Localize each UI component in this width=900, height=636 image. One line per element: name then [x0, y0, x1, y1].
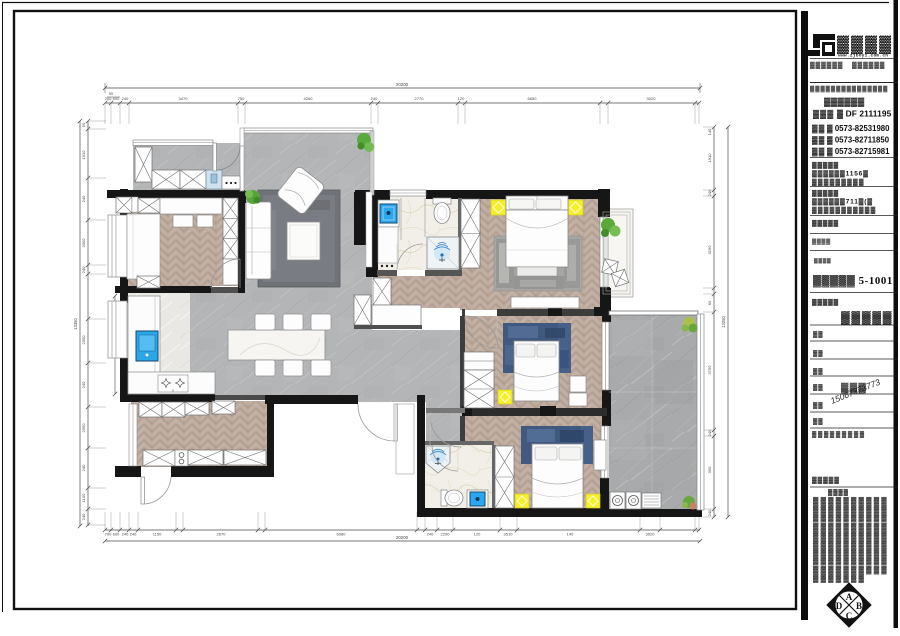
svg-text:3190: 3190 — [707, 245, 712, 255]
svg-text:3020: 3020 — [646, 532, 656, 537]
svg-text:▓▓: ▓▓ — [813, 384, 823, 391]
svg-text:▓▓: ▓▓ — [813, 418, 823, 425]
svg-text:▓▓: ▓▓ — [813, 350, 823, 357]
svg-text:1910: 1910 — [81, 150, 86, 160]
svg-text:120: 120 — [474, 532, 481, 537]
svg-text:▓▓▓▓▓▓▓▓▓▓▓: ▓▓▓▓▓▓▓▓▓▓▓ — [812, 206, 876, 214]
svg-text:2770: 2770 — [415, 96, 425, 101]
svg-text:▓▓: ▓▓ — [812, 124, 826, 134]
svg-text:700: 700 — [105, 532, 112, 537]
svg-text:3300: 3300 — [81, 238, 86, 248]
svg-text:1150: 1150 — [153, 532, 162, 537]
svg-text:▓▓▓▓▓▓: ▓▓▓▓▓▓ — [824, 97, 865, 108]
svg-text:240: 240 — [130, 532, 137, 537]
svg-text:3020: 3020 — [647, 96, 657, 101]
svg-text:▓▓▓▓▓: ▓▓▓▓▓ — [812, 299, 839, 306]
svg-text:▓▓: ▓▓ — [813, 402, 823, 409]
svg-text:▓▓▓▓: ▓▓▓▓ — [814, 257, 831, 264]
svg-text:240: 240 — [707, 509, 712, 516]
svg-text:240: 240 — [427, 532, 434, 537]
svg-text:240: 240 — [81, 464, 86, 471]
svg-text:C: C — [846, 611, 853, 621]
svg-text:▓▓▓▓▓: ▓▓▓▓▓ — [812, 476, 840, 484]
svg-text:▓▓▓▓: ▓▓▓▓ — [837, 35, 893, 54]
svg-text:3750: 3750 — [707, 365, 712, 375]
svg-text:▓▓▓▓▓: ▓▓▓▓▓ — [812, 190, 839, 197]
svg-text:▓▓▓▓▓▓: ▓▓▓▓▓▓ — [810, 61, 843, 69]
svg-text:13250: 13250 — [721, 316, 726, 328]
svg-text:750: 750 — [238, 96, 245, 101]
svg-text:240: 240 — [371, 96, 378, 101]
svg-text:6650: 6650 — [528, 96, 538, 101]
svg-text:▓ 0573-82715981: ▓ 0573-82715981 — [827, 147, 890, 157]
svg-text:2300: 2300 — [81, 335, 86, 345]
svg-text:50: 50 — [109, 92, 113, 96]
svg-text:▓▓▓▓▓ 5-1001: ▓▓▓▓▓ 5-1001 — [813, 275, 893, 288]
svg-text:2050: 2050 — [81, 423, 86, 433]
svg-text:▓ 0573-82711850: ▓ 0573-82711850 — [827, 136, 890, 146]
svg-text:6980: 6980 — [337, 532, 347, 537]
svg-text:20200: 20200 — [396, 82, 409, 87]
svg-text:240: 240 — [707, 429, 712, 436]
svg-text:240: 240 — [122, 96, 129, 101]
svg-text:▓▓▓▓: ▓▓▓▓ — [828, 489, 849, 496]
svg-text:▓ 0573-82531980: ▓ 0573-82531980 — [827, 124, 890, 134]
svg-text:20200: 20200 — [396, 535, 409, 540]
svg-text:n: n — [172, 389, 174, 393]
svg-text:140: 140 — [567, 532, 574, 537]
svg-text:240: 240 — [81, 381, 86, 388]
svg-text:240: 240 — [81, 513, 86, 520]
svg-text:▓▓▓▓▓▓1156▓: ▓▓▓▓▓▓1156▓ — [812, 170, 869, 178]
svg-text:1100: 1100 — [81, 493, 86, 502]
svg-text:240: 240 — [81, 266, 86, 273]
svg-text:▓▓▓▓▓▓711▓(▓: ▓▓▓▓▓▓711▓(▓ — [812, 198, 873, 206]
svg-text:▓▓: ▓▓ — [812, 147, 826, 157]
svg-text:▓▓▓▓▓▓: ▓▓▓▓▓▓ — [852, 61, 885, 69]
svg-text:1910: 1910 — [707, 153, 712, 163]
svg-text:240: 240 — [122, 532, 129, 537]
svg-text:240: 240 — [81, 195, 86, 202]
svg-text:▓▓▓▓▓: ▓▓▓▓▓ — [812, 162, 839, 169]
svg-text:▓▓▓▓▓: ▓▓▓▓▓ — [841, 310, 893, 325]
svg-text:D: D — [836, 601, 843, 611]
svg-text:2670: 2670 — [217, 532, 227, 537]
svg-text:▓▓: ▓▓ — [812, 136, 826, 146]
svg-text:120: 120 — [458, 96, 465, 101]
svg-text:▓▓▓▓▓▓▓▓▓: ▓▓▓▓▓▓▓▓▓ — [812, 431, 866, 438]
svg-text:240: 240 — [707, 189, 712, 196]
svg-text:▓▓▓▓▓: ▓▓▓▓▓ — [812, 220, 839, 227]
svg-text:▓▓▓▓▓▓▓▓▓: ▓▓▓▓▓▓▓▓▓ — [812, 178, 865, 186]
svg-text:600: 600 — [113, 532, 120, 537]
svg-text:A: A — [846, 592, 853, 602]
svg-text:13350: 13350 — [73, 318, 78, 330]
svg-text:▓▓▓▓: ▓▓▓▓ — [812, 238, 831, 245]
svg-text:3510: 3510 — [504, 532, 514, 537]
svg-text:▓▓: ▓▓ — [813, 331, 823, 338]
svg-text:50: 50 — [81, 122, 86, 127]
svg-text:140: 140 — [707, 128, 712, 135]
svg-text:350: 350 — [707, 466, 712, 473]
svg-text:60: 60 — [707, 300, 712, 305]
svg-text:▓▓▓▓▓▓▓: ▓▓▓▓▓▓▓ — [813, 573, 866, 583]
svg-text:4260: 4260 — [304, 96, 314, 101]
svg-text:www.zjboyi.com.cn: www.zjboyi.com.cn — [838, 53, 888, 59]
svg-text:▓▓▓▓▓▓▓▓▓▓▓▓▓▓▓: ▓▓▓▓▓▓▓▓▓▓▓▓▓▓▓ — [810, 86, 888, 93]
svg-text:2290: 2290 — [441, 532, 451, 537]
svg-text:▓▓: ▓▓ — [813, 368, 823, 375]
svg-text:▓▓▓: ▓▓▓ — [813, 110, 834, 120]
svg-text:3470: 3470 — [179, 96, 189, 101]
svg-text:▓ DF 2111195: ▓ DF 2111195 — [837, 109, 892, 120]
svg-text:B: B — [856, 601, 862, 611]
